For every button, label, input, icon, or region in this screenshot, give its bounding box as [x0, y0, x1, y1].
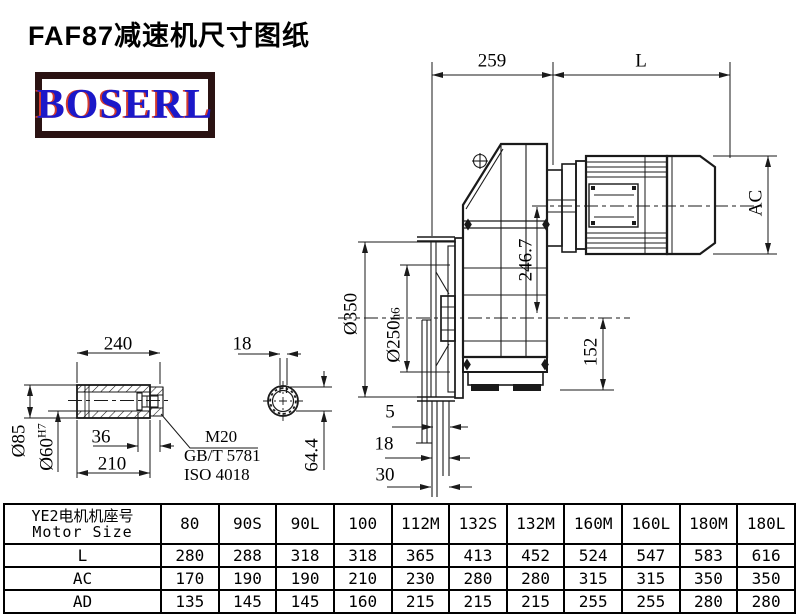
motor-size-label-cn: YE2电机机座号 — [5, 508, 160, 525]
table-row: AD135145145160215215215255255280280 — [4, 590, 795, 613]
dim-value-cell: 318 — [276, 544, 334, 567]
dim-row-label-cell: AC — [4, 567, 161, 590]
note-thread: M20 — [205, 428, 237, 445]
dim-value-cell: 190 — [276, 567, 334, 590]
dim-210-label: 210 — [98, 455, 127, 474]
dim-value-cell: 145 — [276, 590, 334, 613]
main-view — [338, 62, 777, 497]
dim-value-cell: 255 — [622, 590, 680, 613]
motor-frame-header-cell: 100 — [334, 504, 392, 544]
dim-row-label-cell: L — [4, 544, 161, 567]
table-header-row: YE2电机机座号 Motor Size 8090S90L100112M132S1… — [4, 504, 795, 544]
dim-64-label: 64.4 — [303, 438, 322, 471]
dim-value-cell: 280 — [507, 567, 565, 590]
dim-keyway-18-label: 18 — [233, 335, 252, 354]
dim-value-cell: 524 — [564, 544, 622, 567]
dim-36-label: 36 — [92, 428, 111, 447]
dim-row-label-cell: AD — [4, 590, 161, 613]
dim-value-cell: 215 — [449, 590, 507, 613]
dim-85-label: Ø85 — [10, 425, 29, 458]
drawing-sheet: FAF87减速机尺寸图纸 BOSERL — [0, 0, 800, 614]
motor-frame-header-cell: 160M — [564, 504, 622, 544]
dim-152-label: 152 — [582, 338, 601, 367]
dim-value-cell: 230 — [392, 567, 450, 590]
top-dimension-lines — [432, 62, 730, 236]
motor-frame-header-cell: 112M — [392, 504, 450, 544]
dim-value-cell: 315 — [564, 567, 622, 590]
dim-value-cell: 365 — [392, 544, 450, 567]
dim-18-label: 18 — [375, 435, 394, 454]
dim-value-cell: 350 — [680, 567, 738, 590]
dim-value-cell: 288 — [219, 544, 277, 567]
dim-250h6-label: Ø250h6 — [385, 307, 404, 362]
dim-value-cell: 583 — [680, 544, 738, 567]
dim-5-label: 5 — [385, 403, 395, 422]
dim-value-cell: 547 — [622, 544, 680, 567]
dim-value-cell: 280 — [680, 590, 738, 613]
motor-frame-header-cell: 90L — [276, 504, 334, 544]
dim-246-label: 246.7 — [517, 239, 536, 282]
dim-L-label: L — [635, 52, 647, 71]
dim-value-cell: 280 — [449, 567, 507, 590]
dim-value-cell: 190 — [219, 567, 277, 590]
dim-value-cell: 452 — [507, 544, 565, 567]
center-lines — [338, 206, 762, 318]
note-standard-gb: GB/T 5781 — [184, 447, 261, 464]
dim-value-cell: 280 — [161, 544, 219, 567]
dim-value-cell: 413 — [449, 544, 507, 567]
dim-value-cell: 318 — [334, 544, 392, 567]
motor-size-label-en: Motor Size — [5, 524, 160, 541]
table-header-name-cell: YE2电机机座号 Motor Size — [4, 504, 161, 544]
table-row: AC170190190210230280280315315350350 — [4, 567, 795, 590]
dim-value-cell: 350 — [737, 567, 795, 590]
motor-frame-header-cell: 160L — [622, 504, 680, 544]
motor-frame-header-cell: 180L — [737, 504, 795, 544]
dim-AC-label: AC — [747, 190, 766, 216]
dim-value-cell: 145 — [219, 590, 277, 613]
dim-value-cell: 315 — [622, 567, 680, 590]
motor-frame-header-cell: 80 — [161, 504, 219, 544]
dim-240-label: 240 — [104, 335, 133, 354]
dim-value-cell: 215 — [507, 590, 565, 613]
dim-value-cell: 616 — [737, 544, 795, 567]
dim-value-cell: 160 — [334, 590, 392, 613]
motor-fins — [586, 162, 667, 248]
dim-350-label: Ø350 — [342, 293, 361, 335]
note-standard-iso: ISO 4018 — [184, 466, 250, 483]
dim-259-label: 259 — [478, 52, 507, 71]
dim-value-cell: 170 — [161, 567, 219, 590]
motor-frame-header-cell: 180M — [680, 504, 738, 544]
dim-30-label: 30 — [376, 466, 395, 485]
dim-value-cell: 215 — [392, 590, 450, 613]
motor-frame-header-cell: 132M — [507, 504, 565, 544]
dim-value-cell: 210 — [334, 567, 392, 590]
motor-size-table: YE2电机机座号 Motor Size 8090S90L100112M132S1… — [3, 503, 796, 614]
dim-value-cell: 255 — [564, 590, 622, 613]
dim-60H7-label: Ø60H7 — [35, 423, 56, 470]
dim-value-cell: 135 — [161, 590, 219, 613]
motor — [547, 156, 715, 254]
dim-value-cell: 280 — [737, 590, 795, 613]
table-row: L280288318318365413452524547583616 — [4, 544, 795, 567]
motor-frame-header-cell: 132S — [449, 504, 507, 544]
motor-frame-header-cell: 90S — [219, 504, 277, 544]
